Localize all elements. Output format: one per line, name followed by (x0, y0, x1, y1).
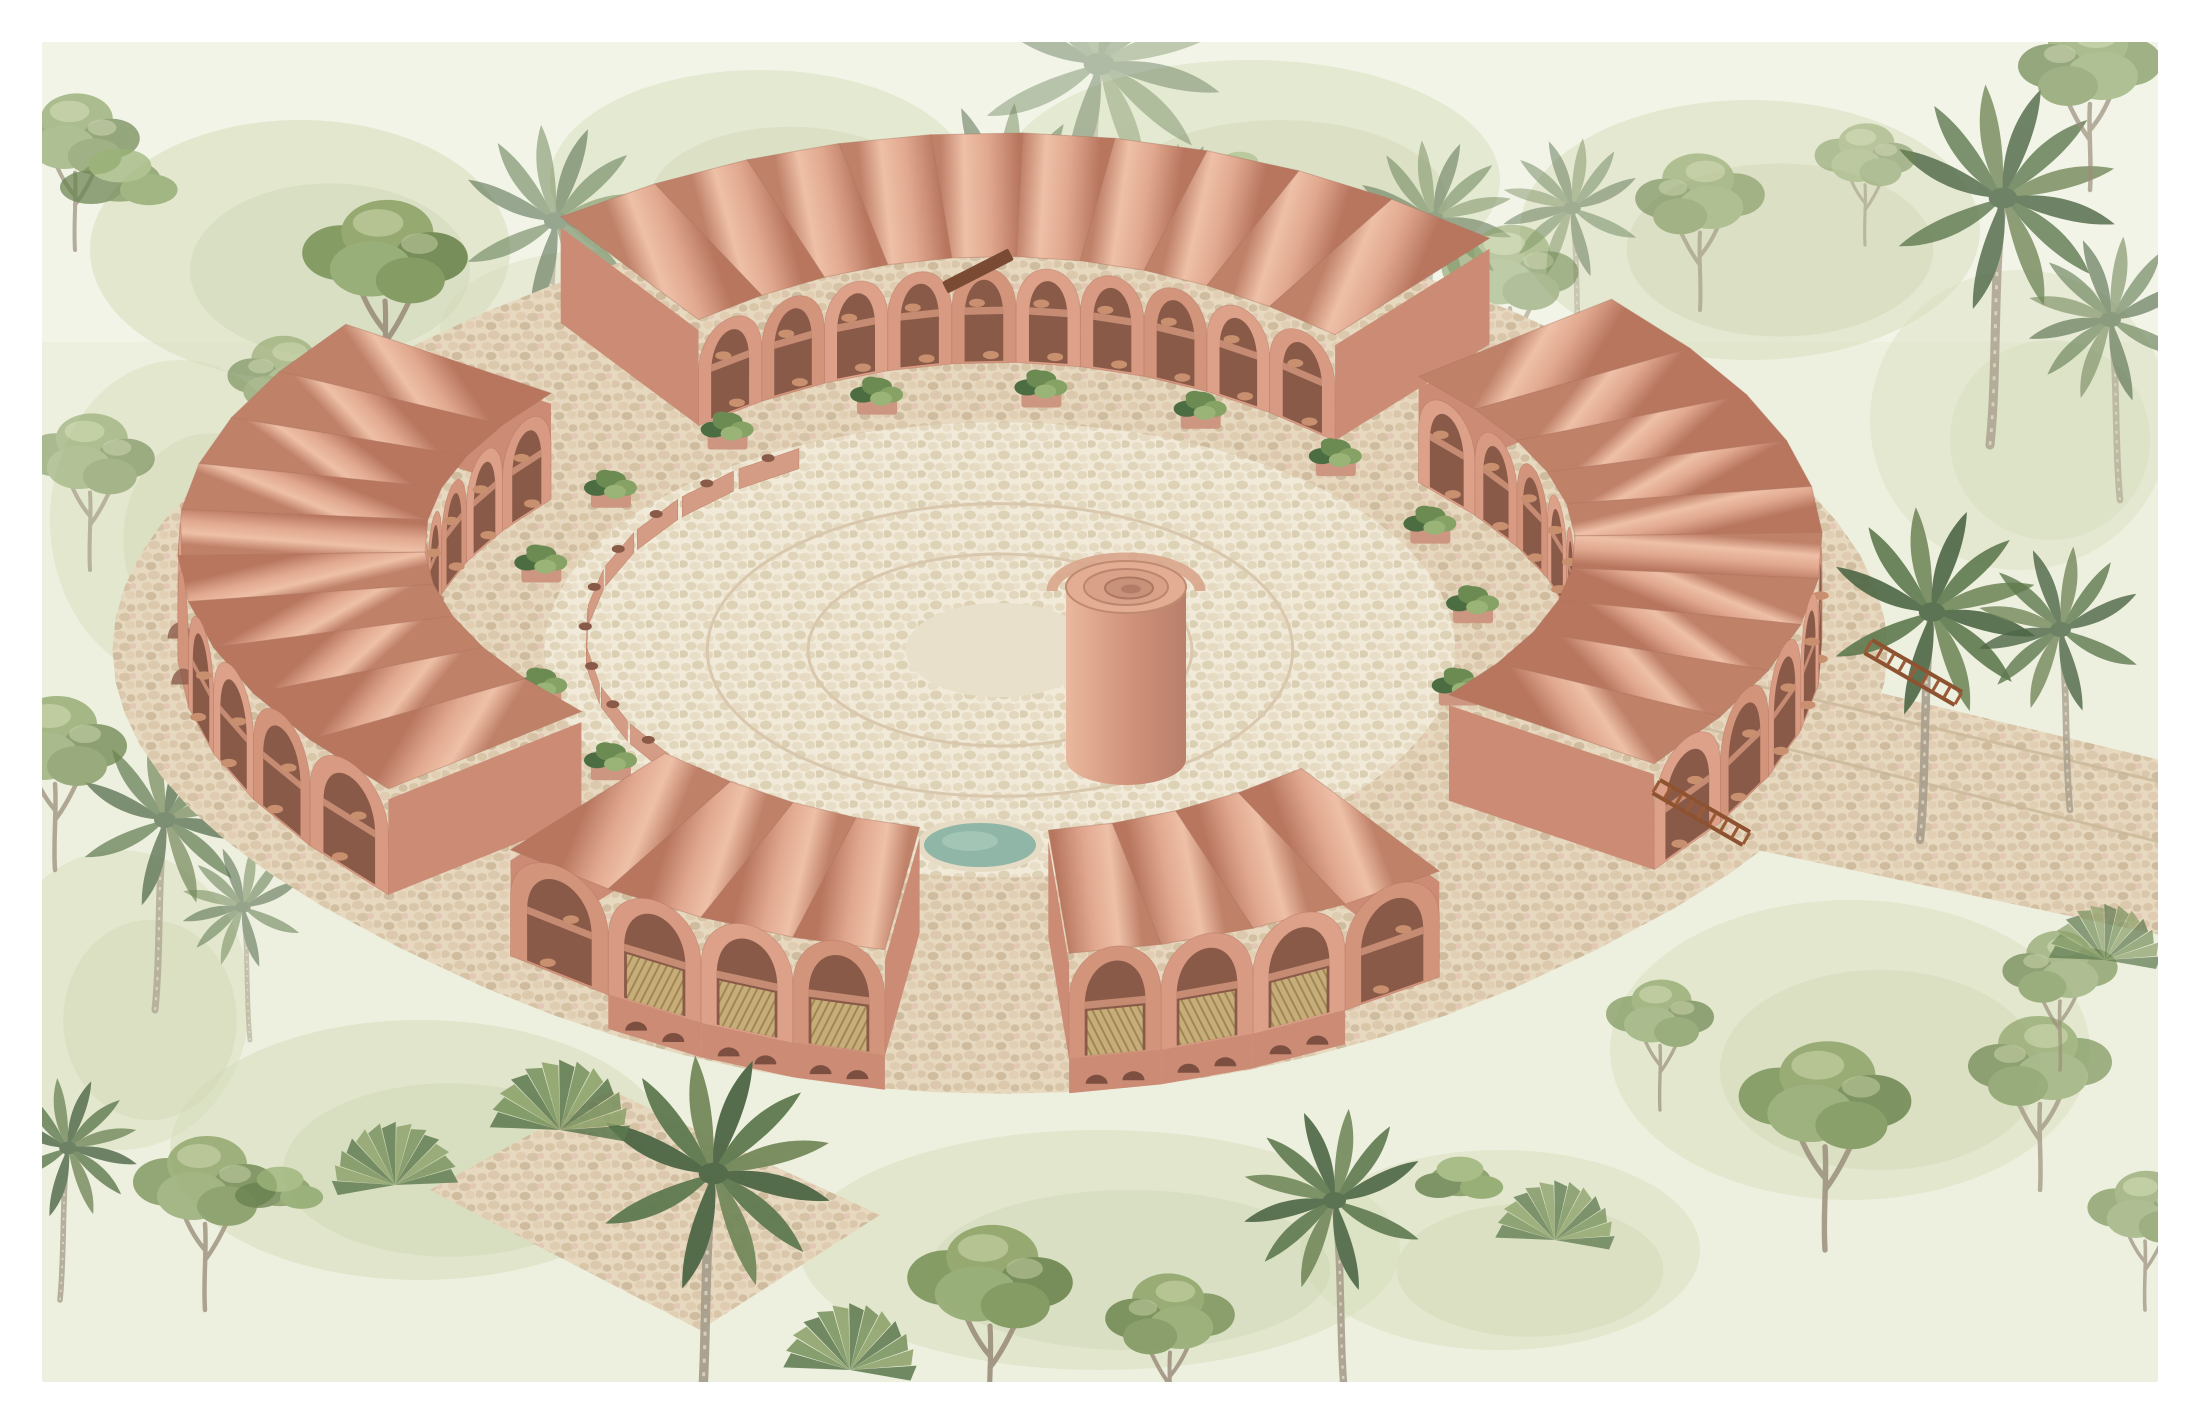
spiral-tower (1052, 558, 1200, 785)
arched-opening (900, 284, 938, 368)
tower-body (1066, 587, 1186, 785)
arched-opening (1157, 300, 1195, 386)
arched-opening (1029, 281, 1068, 364)
timber-screen (811, 999, 866, 1051)
architectural-rendering (0, 0, 2200, 1424)
artwork-frame (0, 0, 2200, 1424)
artwork-page (0, 0, 2200, 1424)
arched-opening (1093, 288, 1131, 373)
timber-screen (1088, 1006, 1143, 1056)
arched-opening (965, 280, 1004, 362)
reflecting-pool (917, 818, 1043, 872)
